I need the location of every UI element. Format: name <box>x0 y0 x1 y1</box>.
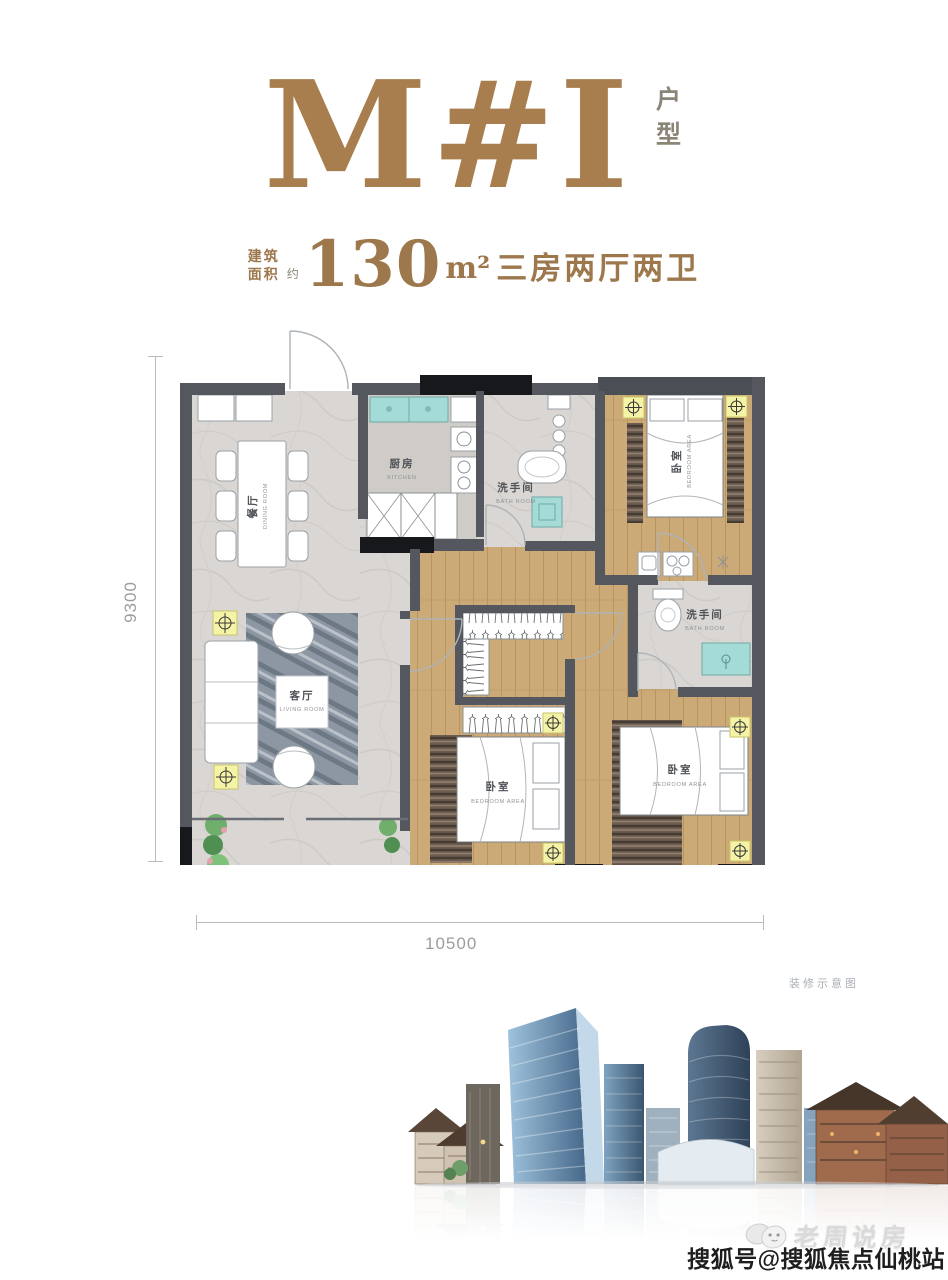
watermark-account: 搜狐号@搜狐焦点仙桃站 <box>687 1240 945 1274</box>
armchair <box>272 612 314 654</box>
room-label-bedroom-top-cn: 卧室 <box>670 449 683 474</box>
stove <box>451 457 477 493</box>
pillow <box>533 743 559 783</box>
room-label-bedroom-mid-cn: 卧室 <box>486 780 511 793</box>
cityscape <box>408 1008 948 1189</box>
light-symbol <box>623 397 644 418</box>
light-symbol <box>543 843 563 863</box>
dining-table <box>238 441 286 567</box>
room-label-bedroom-top-en: BEDROOM AREA <box>687 434 693 488</box>
entry-door <box>290 331 348 389</box>
sofa <box>205 641 258 763</box>
light-symbol <box>730 717 750 737</box>
cabinet <box>236 395 272 421</box>
dim-line-horizontal <box>196 922 764 923</box>
room-label-dining-en: DINING ROOM <box>263 483 269 529</box>
light-symbol <box>214 765 238 789</box>
toilet-tank <box>653 589 683 599</box>
page: M#I 户型 建筑 面积 约 130 m² 三房两厅两卫 9300 10500 … <box>0 0 948 1280</box>
dim-tick <box>148 861 163 862</box>
pillow <box>688 399 722 421</box>
light-symbol <box>213 611 237 635</box>
armchair <box>273 746 315 788</box>
room-label-living-en: LIVING ROOM <box>280 707 325 713</box>
dim-tick <box>148 356 163 357</box>
light-symbol <box>726 396 747 417</box>
plan-note: 装修示意图 <box>789 975 859 991</box>
area-prefix-line1: 建筑 <box>248 248 280 266</box>
pillow <box>650 399 684 421</box>
coffee-table <box>276 676 328 728</box>
counter <box>451 397 477 422</box>
rug <box>727 418 744 523</box>
hob-unit <box>451 427 477 451</box>
room-label-kitchen-cn: 厨房 <box>390 457 415 470</box>
unit-type-label: 户型 <box>649 86 685 156</box>
toilet <box>655 599 681 631</box>
pillow <box>720 773 744 811</box>
dim-width-label: 10500 <box>425 934 477 954</box>
pillow <box>533 789 559 829</box>
washer <box>532 497 562 527</box>
rug <box>627 423 643 523</box>
room-label-bedroom-mid-en: BEDROOM AREA <box>471 799 525 805</box>
area-approx: 约 <box>287 265 299 282</box>
area-prefix: 建筑 面积 <box>248 248 280 283</box>
room-label-dining-cn: 餐厅 <box>246 494 259 520</box>
area-layout: 三房两厅两卫 <box>496 243 700 288</box>
room-label-bedroom-right-cn: 卧室 <box>668 763 693 776</box>
header: M#I 户型 <box>0 58 948 213</box>
dim-height-label: 9300 <box>121 567 141 637</box>
room-label-living-cn: 客厅 <box>289 689 315 702</box>
room-label-bedroom-right-en: BEDROOM AREA <box>653 782 707 788</box>
room-label-bath-top-cn: 洗手间 <box>497 481 535 494</box>
light-symbol <box>543 713 563 733</box>
area-value: 130 <box>305 238 442 292</box>
floor-plan: 客厅 LIVING ROOM 餐厅 DINING ROOM 厨房 <box>180 300 765 865</box>
room-label-bath-mid-en: BATH ROOM <box>685 626 725 632</box>
dim-line-vertical <box>155 356 156 862</box>
light-symbol <box>730 841 750 861</box>
skyline-illustration <box>408 992 948 1240</box>
room-label-bath-top-en: BATH ROOM <box>496 499 536 505</box>
area-info: 建筑 面积 约 130 m² 三房两厅两卫 <box>0 238 948 292</box>
page-title: M#I <box>263 58 632 213</box>
cabinet <box>198 395 234 421</box>
dim-tick <box>196 915 197 930</box>
area-prefix-line2: 面积 <box>248 266 280 284</box>
area-unit: m² <box>445 251 490 286</box>
roof <box>408 1108 466 1132</box>
dim-tick <box>763 915 764 930</box>
room-label-kitchen-en: KITCHEN <box>387 475 416 481</box>
room-label-bath-mid-cn: 洗手间 <box>686 608 724 621</box>
shoe-cabinets <box>367 493 457 539</box>
